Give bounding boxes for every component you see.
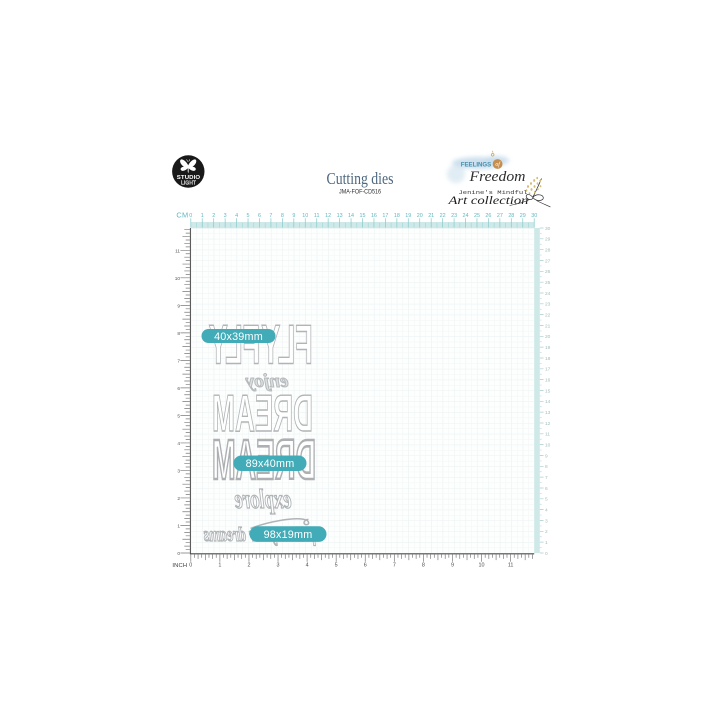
svg-text:24: 24 [545, 291, 551, 297]
svg-text:13: 13 [337, 213, 343, 219]
svg-text:8: 8 [422, 563, 425, 569]
svg-text:JMA-FOF-CD516: JMA-FOF-CD516 [339, 188, 381, 195]
svg-text:7: 7 [177, 358, 180, 364]
svg-text:1: 1 [201, 213, 204, 219]
svg-text:6: 6 [364, 563, 367, 569]
svg-text:25: 25 [545, 280, 551, 286]
svg-text:8: 8 [177, 331, 180, 337]
svg-text:4: 4 [177, 441, 180, 447]
svg-text:14: 14 [348, 213, 354, 219]
svg-text:98x19mm: 98x19mm [264, 529, 313, 541]
svg-text:11: 11 [545, 432, 550, 438]
svg-text:7: 7 [545, 475, 548, 481]
svg-text:40x39mm: 40x39mm [214, 331, 263, 343]
svg-text:20: 20 [545, 334, 551, 340]
svg-text:2: 2 [247, 563, 250, 569]
svg-text:15: 15 [545, 388, 551, 394]
svg-text:2: 2 [177, 496, 180, 502]
svg-text:11: 11 [508, 563, 514, 569]
svg-text:FLY: FLY [261, 313, 313, 376]
svg-text:17: 17 [382, 213, 388, 219]
svg-text:5: 5 [247, 213, 250, 219]
svg-text:27: 27 [545, 258, 551, 264]
svg-text:6: 6 [258, 213, 261, 219]
svg-text:27: 27 [497, 213, 503, 219]
svg-text:1: 1 [545, 540, 548, 546]
svg-text:9: 9 [451, 563, 454, 569]
svg-text:2: 2 [212, 213, 215, 219]
svg-text:30: 30 [545, 226, 551, 232]
svg-text:4: 4 [545, 508, 548, 514]
svg-text:2: 2 [545, 529, 548, 535]
svg-text:Art collection: Art collection [447, 193, 528, 207]
svg-text:14: 14 [545, 399, 551, 405]
svg-text:29: 29 [545, 237, 551, 243]
svg-text:4: 4 [235, 213, 238, 219]
svg-text:Cutting dies: Cutting dies [327, 169, 394, 188]
svg-text:22: 22 [440, 213, 446, 219]
svg-text:11: 11 [175, 248, 180, 254]
svg-text:25: 25 [474, 213, 480, 219]
svg-text:explore: explore [234, 484, 291, 514]
svg-text:10: 10 [302, 213, 308, 219]
svg-text:12: 12 [325, 213, 331, 219]
svg-text:12: 12 [545, 421, 551, 427]
svg-text:9: 9 [545, 453, 548, 459]
svg-text:26: 26 [545, 269, 551, 275]
svg-text:16: 16 [545, 378, 551, 384]
svg-text:10: 10 [175, 276, 181, 282]
svg-text:6: 6 [545, 486, 548, 492]
svg-text:FLY: FLY [209, 313, 261, 376]
svg-text:19: 19 [405, 213, 411, 219]
svg-text:7: 7 [269, 213, 272, 219]
svg-text:26: 26 [485, 213, 491, 219]
svg-text:0: 0 [177, 551, 180, 557]
svg-text:9: 9 [177, 303, 180, 309]
svg-text:8: 8 [281, 213, 284, 219]
svg-text:11: 11 [314, 213, 320, 219]
svg-text:19: 19 [545, 345, 551, 351]
svg-text:0: 0 [545, 551, 548, 557]
svg-text:3: 3 [545, 518, 548, 524]
svg-text:21: 21 [428, 213, 434, 219]
svg-text:7: 7 [393, 563, 396, 569]
svg-text:24: 24 [463, 213, 469, 219]
svg-text:20: 20 [417, 213, 423, 219]
svg-text:21: 21 [545, 323, 551, 329]
svg-text:15: 15 [360, 213, 366, 219]
svg-text:28: 28 [508, 213, 514, 219]
svg-text:0: 0 [189, 213, 192, 219]
svg-text:3: 3 [277, 563, 280, 569]
svg-text:9: 9 [292, 213, 295, 219]
svg-text:18: 18 [545, 356, 551, 362]
svg-text:10: 10 [479, 563, 485, 569]
svg-text:28: 28 [545, 248, 551, 254]
svg-text:18: 18 [394, 213, 400, 219]
svg-text:Freedom: Freedom [468, 169, 525, 185]
svg-text:8: 8 [545, 464, 548, 470]
svg-text:10: 10 [545, 443, 551, 449]
svg-text:5: 5 [545, 497, 548, 503]
svg-text:17: 17 [545, 367, 551, 373]
svg-text:5: 5 [177, 413, 180, 419]
svg-text:5: 5 [335, 563, 338, 569]
svg-text:3: 3 [224, 213, 227, 219]
svg-text:FEELINGS: FEELINGS [461, 161, 492, 168]
svg-text:1: 1 [218, 563, 221, 569]
svg-text:1: 1 [177, 523, 180, 529]
svg-text:6: 6 [177, 386, 180, 392]
svg-text:LIGHT: LIGHT [181, 181, 196, 187]
svg-text:0: 0 [189, 563, 192, 569]
svg-text:16: 16 [371, 213, 377, 219]
svg-text:3: 3 [177, 468, 180, 474]
svg-text:23: 23 [545, 302, 551, 308]
svg-text:4: 4 [306, 563, 309, 569]
svg-text:23: 23 [451, 213, 457, 219]
svg-text:13: 13 [545, 410, 551, 416]
svg-text:29: 29 [520, 213, 526, 219]
svg-text:89x40mm: 89x40mm [246, 458, 295, 470]
svg-text:22: 22 [545, 313, 551, 319]
svg-text:30: 30 [531, 213, 537, 219]
svg-text:INCH: INCH [172, 563, 187, 569]
svg-text:CM: CM [176, 211, 188, 220]
